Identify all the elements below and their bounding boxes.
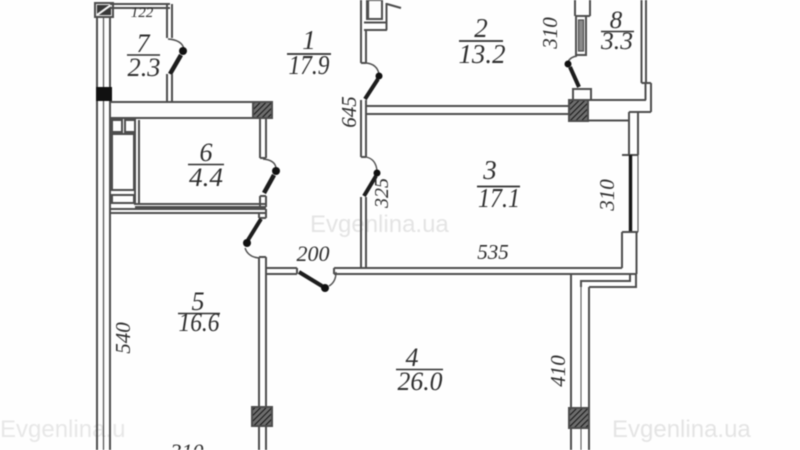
svg-text:325: 325 [371,178,393,209]
svg-text:310: 310 [170,439,204,450]
svg-text:26.0: 26.0 [398,367,443,396]
svg-text:Evgenlina.u: Evgenlina.u [0,416,125,443]
svg-text:3: 3 [482,155,497,185]
svg-text:16.6: 16.6 [179,308,220,337]
svg-text:Evgenlina.ua: Evgenlina.ua [310,211,449,238]
svg-text:2.3: 2.3 [128,53,161,82]
svg-text:410: 410 [546,355,570,387]
svg-text:Evgenlina.ua: Evgenlina.ua [612,416,751,443]
svg-text:310: 310 [595,179,619,212]
svg-text:17.1: 17.1 [478,183,520,213]
svg-text:540: 540 [111,322,135,354]
svg-text:4.4: 4.4 [189,163,223,192]
svg-text:3.3: 3.3 [600,28,633,55]
svg-text:122: 122 [131,5,154,21]
svg-text:200: 200 [297,241,330,266]
svg-text:13.2: 13.2 [459,39,506,69]
svg-text:310: 310 [538,17,562,50]
svg-text:535: 535 [477,240,509,264]
svg-text:645: 645 [337,96,361,128]
svg-text:17.9: 17.9 [289,50,330,80]
